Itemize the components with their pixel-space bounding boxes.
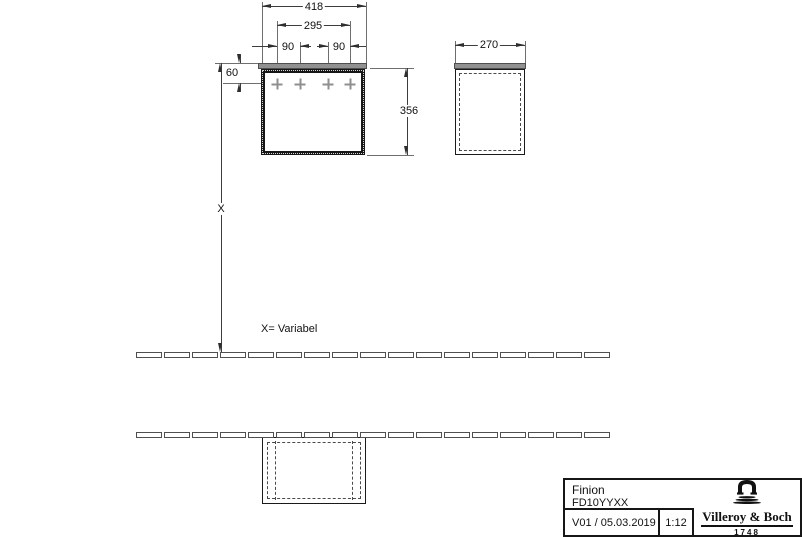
title-block: Finion FD10YYXX V01 / 05.03.2019 1:12 Vi… [563, 478, 802, 537]
floor-plank [164, 352, 190, 358]
floor-plank [416, 432, 442, 438]
floor-plank [416, 352, 442, 358]
brand-year: 1748 [734, 528, 760, 537]
product-line-label: Finion [572, 483, 694, 497]
floor-plank [528, 432, 554, 438]
floor-plank [556, 432, 582, 438]
floor-plank [220, 352, 246, 358]
floor-plank [388, 352, 414, 358]
plan-view-hidden-wall [275, 441, 276, 500]
dim-arrow [262, 4, 271, 8]
floor-plank [472, 352, 498, 358]
floor-plank [584, 432, 610, 438]
drill-marker [295, 79, 306, 90]
dim-arrow [237, 83, 241, 92]
dim-arrow [350, 44, 359, 48]
floor-plank [276, 432, 302, 438]
floor-plank [500, 352, 526, 358]
dim-arrow [516, 43, 525, 47]
dim-arrow [218, 343, 222, 352]
product-cell: Finion FD10YYXX [565, 480, 694, 510]
drill-marker [345, 79, 356, 90]
dim-arrow [237, 54, 241, 63]
dim-arrow [277, 23, 286, 27]
floor-plank [220, 432, 246, 438]
floor-plank [136, 352, 162, 358]
drawing-scale: 1:12 [660, 510, 694, 535]
drill-marker [272, 79, 283, 90]
floor-plank [332, 352, 358, 358]
floor-plank [556, 352, 582, 358]
floor-plank [584, 352, 610, 358]
floor-plank [444, 352, 470, 358]
floor-plank [528, 352, 554, 358]
dim-arrow [455, 43, 464, 47]
floor-plank [472, 432, 498, 438]
floor-plank [136, 432, 162, 438]
floor-plank [248, 432, 274, 438]
dim-label-hole-span: 295 [302, 20, 324, 32]
dim-arrow [268, 44, 277, 48]
dim-arrow [341, 23, 350, 27]
dim-arrow [404, 68, 408, 77]
technical-drawing-canvas: 418 295 90 90 60 356 270 X X= Variabel [0, 0, 802, 537]
floor-plank [500, 432, 526, 438]
floor-plank [360, 352, 386, 358]
version-date: V01 / 05.03.2019 [565, 510, 660, 535]
dim-label-depth: 270 [478, 39, 500, 51]
dim-label-floor-distance: X [215, 203, 226, 215]
extension-line [262, 2, 263, 63]
floor-plank [444, 432, 470, 438]
plan-view-hidden-edge [267, 442, 361, 499]
dim-arrow [319, 44, 328, 48]
floor-plank [332, 432, 358, 438]
dim-label-hole-left: 90 [280, 41, 296, 53]
drill-marker [323, 79, 334, 90]
floor-plank [192, 432, 218, 438]
dim-label-height: 356 [398, 105, 420, 117]
dim-arrow [300, 44, 309, 48]
floor-plank [192, 352, 218, 358]
brand-name: Villeroy & Boch [701, 510, 793, 527]
extension-line [366, 2, 367, 63]
floor-plank [388, 432, 414, 438]
floor-hatch-upper [136, 352, 610, 358]
dim-label-hole-right: 90 [331, 41, 347, 53]
dim-label-total-width: 418 [303, 1, 325, 13]
floor-plank [360, 432, 386, 438]
floor-plank [276, 352, 302, 358]
fountain-icon [731, 479, 763, 510]
dim-label-top-offset: 60 [224, 67, 240, 79]
floor-plank [248, 352, 274, 358]
extension-line [525, 41, 526, 63]
floor-plank [164, 432, 190, 438]
dim-arrow [404, 146, 408, 155]
brand-logo: Villeroy & Boch 1748 [694, 480, 800, 535]
floor-plank [304, 352, 330, 358]
floor-hatch-lower [136, 432, 610, 438]
extension-line [367, 155, 414, 156]
variable-note: X= Variabel [261, 323, 317, 335]
dim-arrow [218, 63, 222, 72]
plan-view-hidden-wall [352, 441, 353, 500]
floor-plank [304, 432, 330, 438]
article-number: FD10YYXX [572, 497, 694, 510]
dim-arrow [357, 4, 366, 8]
side-view-hidden-edge [459, 73, 521, 151]
